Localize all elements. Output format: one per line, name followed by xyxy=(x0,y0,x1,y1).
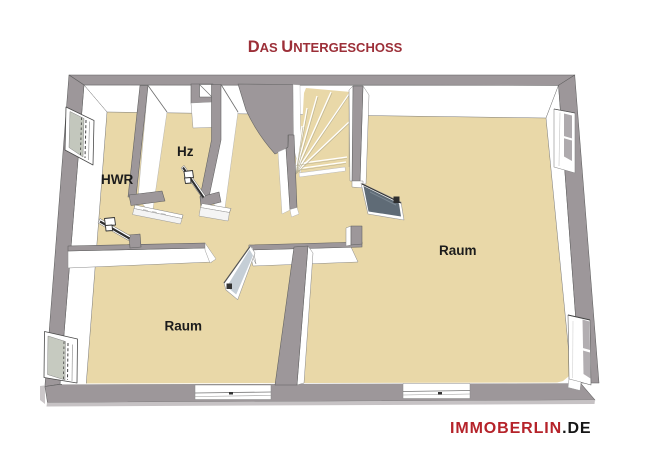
svg-text:HWR: HWR xyxy=(101,172,133,187)
svg-text:Hz: Hz xyxy=(177,144,194,159)
svg-text:Raum: Raum xyxy=(165,319,203,334)
svg-text:Raum: Raum xyxy=(439,243,477,258)
